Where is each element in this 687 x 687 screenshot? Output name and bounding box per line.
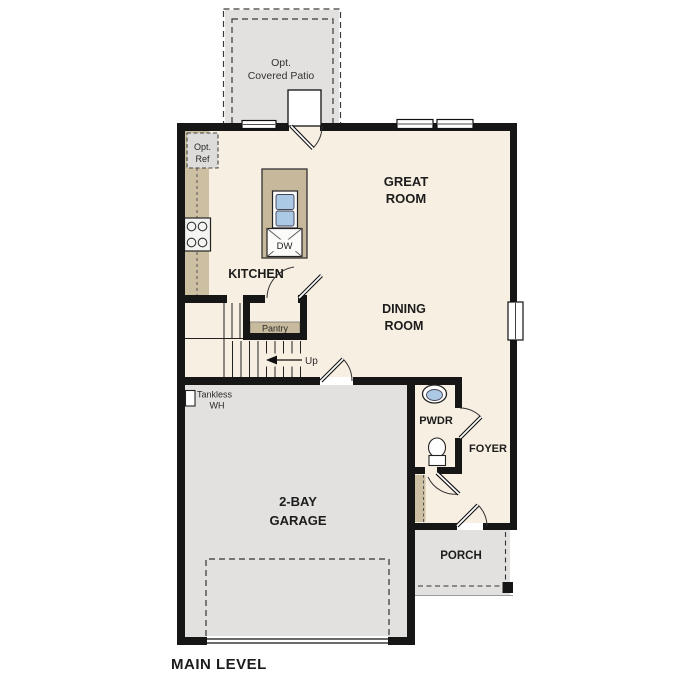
tankless-water-heater-icon <box>186 391 196 407</box>
wall-segment <box>243 333 307 340</box>
tankless-label-line1: Tankless <box>197 390 233 400</box>
patio-label-line2: Covered Patio <box>248 70 315 82</box>
wall-segment <box>177 295 227 303</box>
great-room-label-line2: ROOM <box>386 191 426 206</box>
window <box>508 302 523 340</box>
porch <box>415 530 513 596</box>
wall-segment <box>177 377 320 385</box>
foyer-label: FOYER <box>469 443 507 455</box>
porch-slab <box>415 530 510 595</box>
main-floor <box>185 131 510 377</box>
tankless-label-line2: WH <box>210 401 225 411</box>
plan-title: MAIN LEVEL <box>171 656 267 673</box>
powder-room-label: PWDR <box>419 415 453 427</box>
dishwasher-label: DW <box>277 241 293 252</box>
dining-room-label-line1: DINING <box>382 302 426 316</box>
garage-label-line2: GARAGE <box>269 513 326 528</box>
garage-slab <box>185 385 407 637</box>
porch-label: PORCH <box>440 550 482 562</box>
pantry-label: Pantry <box>262 324 289 334</box>
up-arrow-icon <box>264 354 304 367</box>
opt-ref-label-line1: Opt. <box>194 142 211 152</box>
wall-segment <box>437 467 462 474</box>
floor-plan-page: Opt. Covered Patio Opt. Ref GREAT ROOM K… <box>0 0 687 687</box>
window <box>437 120 473 129</box>
dining-room-label-line2: ROOM <box>385 319 424 333</box>
wall-segment <box>407 467 425 474</box>
floor-plan-drawing: Opt. Covered Patio Opt. Ref GREAT ROOM K… <box>0 0 687 687</box>
wall-segment <box>483 523 517 530</box>
sink-basin-top <box>276 195 294 210</box>
garage-label-line1: 2-BAY <box>279 494 317 509</box>
wall-segment <box>407 377 415 645</box>
kitchen-label: KITCHEN <box>228 267 284 281</box>
wall-segment <box>407 523 457 530</box>
toilet-icon <box>429 438 446 466</box>
stairs-up-label: Up <box>305 356 318 367</box>
great-room-label-line1: GREAT <box>384 174 429 189</box>
window <box>397 120 433 129</box>
wall-segment <box>177 637 207 645</box>
bathroom-sink-basin <box>427 390 443 401</box>
porch-post <box>503 582 514 593</box>
window <box>242 121 276 129</box>
opt-ref-label-line2: Ref <box>195 154 210 164</box>
wall-segment <box>388 637 415 645</box>
foyer-closet <box>415 475 426 522</box>
patio-label-line1: Opt. <box>271 57 291 69</box>
sink-basin-bottom <box>276 211 294 226</box>
wall-segment <box>455 377 462 408</box>
